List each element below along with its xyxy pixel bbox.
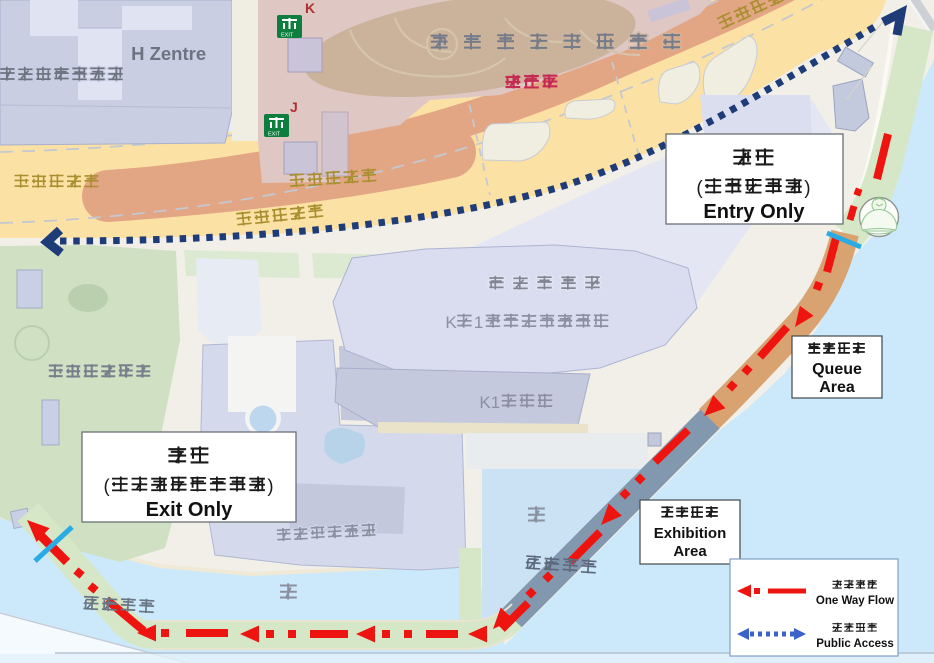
svg-text:(: ( bbox=[104, 475, 111, 496]
svg-text:Queue: Queue bbox=[812, 361, 862, 378]
svg-text:K1: K1 bbox=[479, 393, 500, 412]
svg-text:Exit Only: Exit Only bbox=[146, 499, 234, 521]
svg-text:Area: Area bbox=[819, 379, 855, 396]
svg-text:One Way Flow: One Way Flow bbox=[816, 595, 894, 607]
svg-text:(: ( bbox=[696, 178, 703, 199]
svg-text:EXIT: EXIT bbox=[281, 33, 294, 39]
svg-text:J: J bbox=[290, 99, 298, 115]
svg-text:): ) bbox=[804, 178, 810, 199]
svg-text:Exhibition: Exhibition bbox=[654, 525, 727, 542]
svg-text:EXIT: EXIT bbox=[268, 132, 281, 138]
svg-text:K: K bbox=[305, 0, 315, 16]
svg-text:Public Access: Public Access bbox=[816, 638, 894, 650]
svg-text:1: 1 bbox=[474, 313, 483, 332]
svg-text:H Zentre: H Zentre bbox=[131, 43, 206, 64]
svg-text:): ) bbox=[267, 475, 273, 496]
svg-text:Entry Only: Entry Only bbox=[703, 201, 805, 223]
svg-text:Area: Area bbox=[673, 543, 707, 560]
